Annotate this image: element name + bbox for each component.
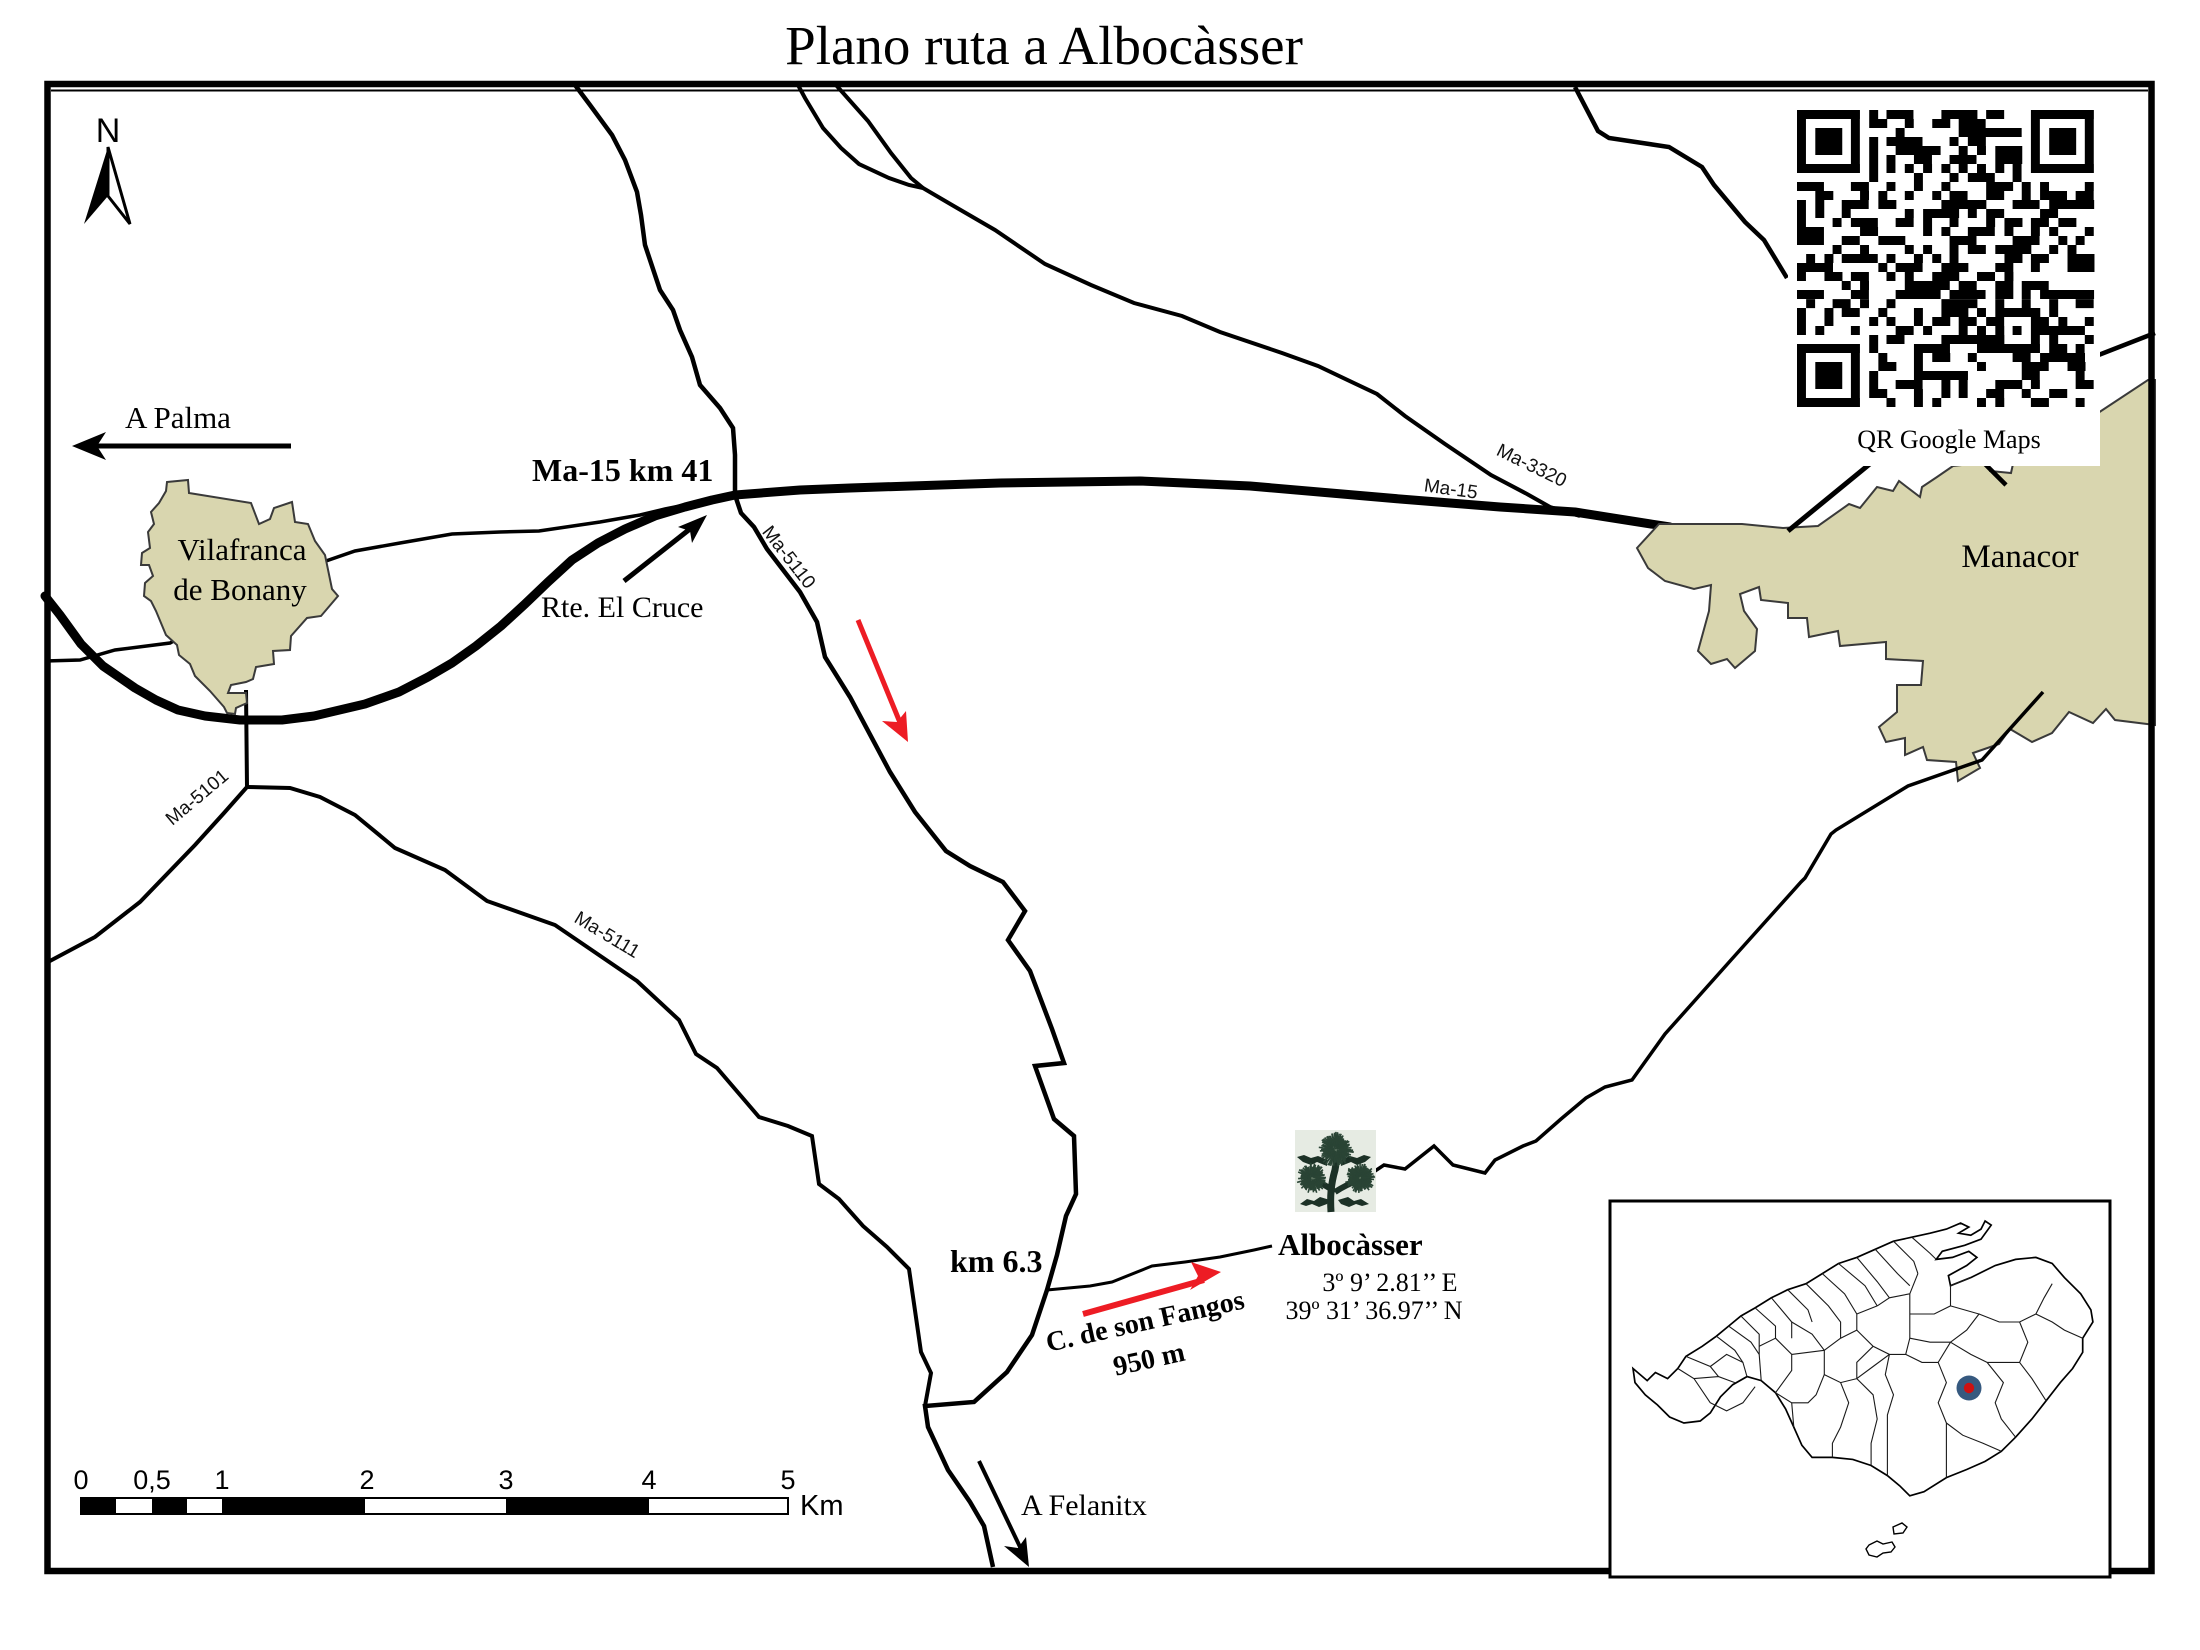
svg-text:QR Google Maps: QR Google Maps <box>1857 425 2040 454</box>
svg-text:3: 3 <box>498 1465 513 1495</box>
svg-text:N: N <box>96 112 121 150</box>
svg-text:2: 2 <box>359 1465 374 1495</box>
svg-text:Rte. El Cruce: Rte. El Cruce <box>541 591 703 624</box>
svg-text:Km: Km <box>800 1490 844 1522</box>
svg-text:Manacor: Manacor <box>1961 539 2078 575</box>
svg-text:Plano ruta a Albocàsser: Plano ruta a Albocàsser <box>785 15 1303 76</box>
svg-text:5: 5 <box>780 1465 795 1495</box>
svg-text:Ma-15 km 41: Ma-15 km 41 <box>532 452 713 488</box>
svg-text:de Bonany: de Bonany <box>173 572 307 607</box>
svg-text:0: 0 <box>73 1465 88 1495</box>
svg-text:39º 31’ 36.97’’ N: 39º 31’ 36.97’’ N <box>1285 1296 1462 1325</box>
svg-text:Albocàsser: Albocàsser <box>1278 1227 1423 1262</box>
svg-text:4: 4 <box>641 1465 656 1495</box>
svg-text:1: 1 <box>214 1465 229 1495</box>
svg-text:km 6.3: km 6.3 <box>950 1243 1042 1279</box>
svg-text:A Palma: A Palma <box>125 400 231 435</box>
svg-text:Vilafranca: Vilafranca <box>178 532 307 567</box>
svg-text:0,5: 0,5 <box>133 1465 171 1495</box>
svg-text:A Felanitx: A Felanitx <box>1021 1489 1147 1522</box>
svg-text:3º 9’ 2.81’’ E: 3º 9’ 2.81’’ E <box>1322 1268 1457 1297</box>
